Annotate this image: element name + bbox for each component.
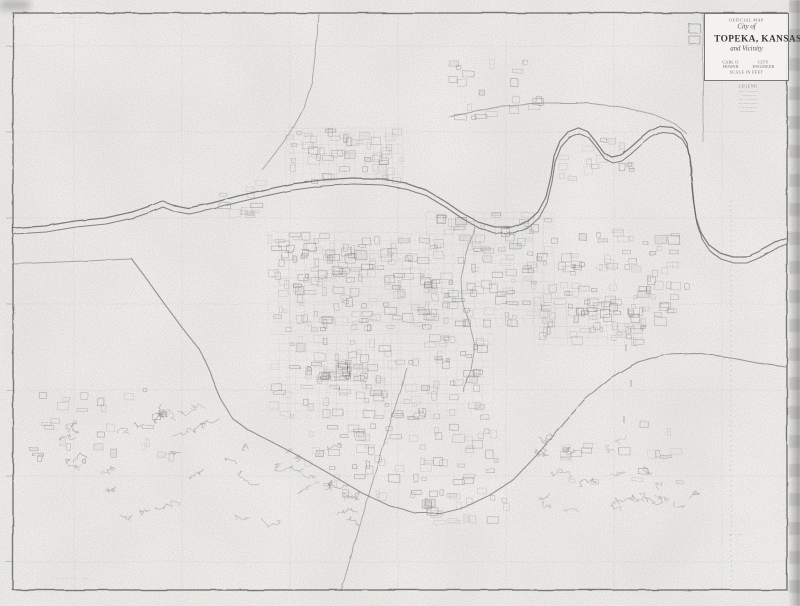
scale-note: SCALE IN FEET: [726, 70, 768, 75]
title-official-label: OFFICIAL MAP: [726, 18, 768, 23]
title-credits: CARL O. HOWER CITY ENGINEER: [709, 60, 784, 69]
credit-name: CARL O. HOWER: [714, 60, 747, 69]
marginal-note-bottom-left: –··–– ––·· ––·: [55, 576, 91, 581]
legend-row: — ————: [735, 101, 760, 103]
marginal-note-bottom-right: ··––·––: [724, 532, 743, 537]
legend-row: ··— ———: [735, 105, 760, 107]
map-canvas: [0, 0, 800, 606]
legend-row: —— ·———: [735, 89, 760, 91]
legend: LEGEND —— ·———·· —————·· ———— ————··— ——…: [720, 84, 776, 113]
title-block: OFFICIAL MAP City of TOPEKA, KANSAS and …: [704, 13, 789, 81]
legend-rows: —— ·———·· —————·· ———— ————··— ———— ———: [720, 89, 776, 113]
title-city-of: City of: [718, 23, 774, 30]
marginal-note-top-left: ··––· ·––··–: [52, 15, 83, 20]
legend-title: LEGEND: [734, 84, 762, 87]
legend-row: ·· ————: [735, 93, 760, 95]
title-vicinity: and Vicinity: [718, 45, 774, 52]
map-title: TOPEKA, KANSAS: [714, 33, 779, 45]
legend-row: —·· ———: [735, 97, 760, 99]
credit-role: CITY ENGINEER: [747, 60, 779, 69]
legend-row: — ———: [735, 109, 760, 111]
scanned-map-page: OFFICIAL MAP City of TOPEKA, KANSAS and …: [0, 0, 800, 606]
